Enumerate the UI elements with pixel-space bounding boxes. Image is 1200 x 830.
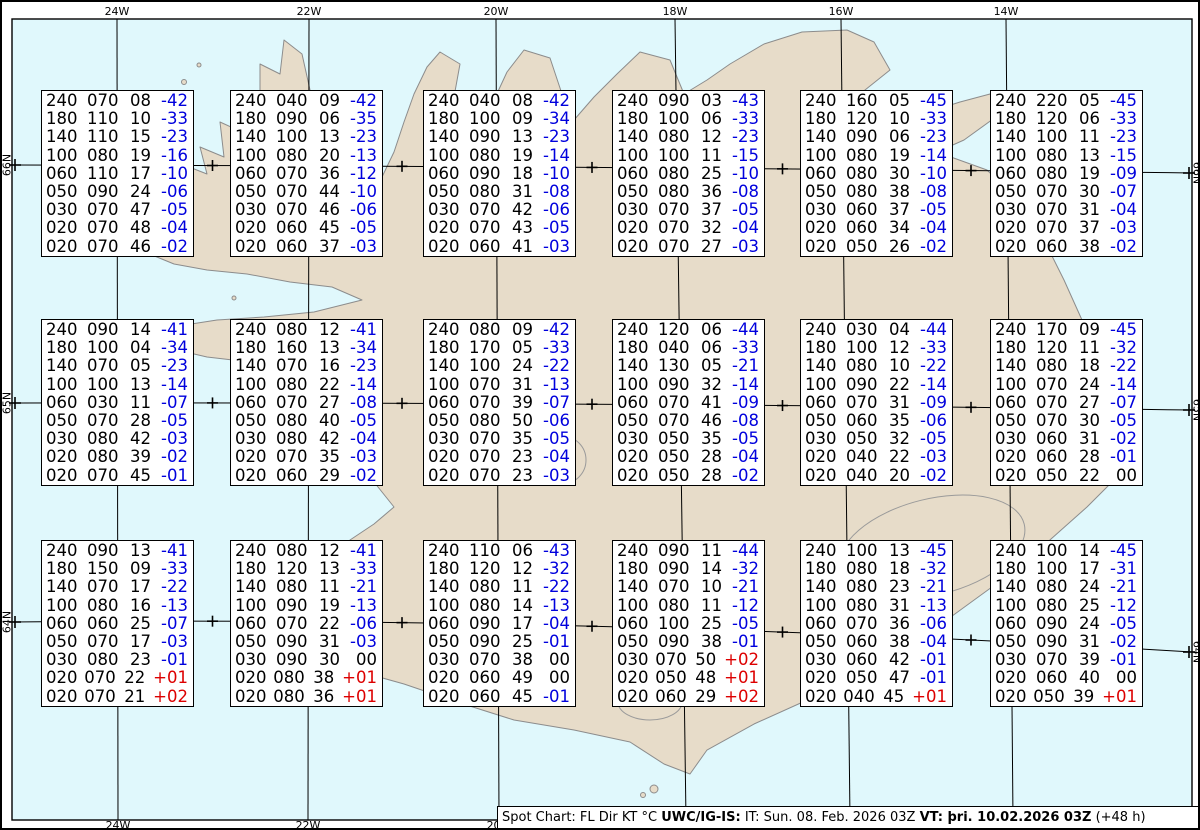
temperature-c: +02	[724, 688, 759, 706]
wind-speed-kt: 31	[1079, 201, 1110, 219]
wind-direction: 060	[87, 615, 130, 633]
wind-direction: 090	[87, 183, 130, 201]
temperature-c: -23	[1110, 128, 1137, 146]
wind-speed-kt: 46	[319, 201, 350, 219]
temperature-c: +01	[342, 669, 377, 687]
station-data-row: 03007035-05	[424, 430, 575, 448]
temperature-c: +01	[912, 688, 947, 706]
wind-speed-kt: 29	[319, 467, 350, 485]
flight-level: 060	[617, 615, 658, 633]
wind-direction: 050	[658, 467, 701, 485]
flight-level: 140	[428, 578, 469, 596]
flight-level: 060	[46, 394, 87, 412]
wind-speed-kt: 16	[319, 357, 350, 375]
wind-direction: 120	[846, 110, 889, 128]
flight-level: 050	[235, 633, 276, 651]
flight-level: 020	[46, 238, 87, 256]
wind-direction: 070	[87, 412, 130, 430]
wind-direction: 070	[87, 201, 130, 219]
wind-speed-kt: 17	[130, 165, 161, 183]
wind-speed-kt: 13	[130, 542, 161, 560]
temperature-c: -06	[161, 183, 188, 201]
wind-speed-kt: 10	[889, 357, 920, 375]
wind-speed-kt: 50	[695, 651, 724, 669]
temperature-c: -06	[543, 201, 570, 219]
temperature-c: -12	[350, 165, 377, 183]
wind-direction: 040	[846, 448, 889, 466]
wind-direction: 080	[658, 597, 701, 615]
temperature-c: -21	[920, 578, 947, 596]
wind-direction: 070	[658, 394, 701, 412]
station-data-row: 24017009-45	[991, 321, 1142, 339]
station-data-row: 0200604000	[991, 669, 1142, 687]
flight-level: 050	[995, 633, 1036, 651]
flight-level: 060	[46, 615, 87, 633]
wind-speed-kt: 06	[319, 110, 350, 128]
wind-direction: 080	[1036, 578, 1079, 596]
wind-direction: 070	[658, 412, 701, 430]
wind-speed-kt: 13	[130, 376, 161, 394]
wind-direction: 100	[469, 357, 512, 375]
temperature-c: -05	[732, 615, 759, 633]
station-data-row: 10008019-14	[801, 147, 952, 165]
station-data-row: 05007044-10	[231, 183, 382, 201]
flight-level: 180	[995, 339, 1036, 357]
wind-speed-kt: 09	[130, 560, 161, 578]
longitude-label-top: 24W	[105, 5, 130, 18]
temperature-c: -22	[1110, 357, 1137, 375]
temperature-c: -04	[920, 219, 947, 237]
station-box-r2c3: 24008009-4218017005-3314010024-221000703…	[423, 319, 576, 486]
wind-direction: 080	[469, 412, 512, 430]
wind-speed-kt: 14	[130, 321, 161, 339]
temperature-c: -02	[161, 448, 188, 466]
flight-level: 050	[428, 183, 469, 201]
flight-level: 100	[995, 147, 1036, 165]
temperature-c: -04	[732, 219, 759, 237]
station-box-r3c5: 24010013-4518008018-3214008023-211000803…	[800, 540, 953, 707]
temperature-c: -01	[920, 651, 947, 669]
station-data-row: 14008012-23	[613, 128, 764, 146]
temperature-c: -42	[161, 92, 188, 110]
flight-level: 030	[805, 651, 846, 669]
flight-level: 100	[428, 376, 469, 394]
wind-speed-kt: 49	[512, 669, 543, 687]
wind-speed-kt: 22	[889, 376, 920, 394]
wind-speed-kt: 05	[1079, 92, 1110, 110]
wind-speed-kt: 05	[889, 92, 920, 110]
temperature-c: -13	[350, 147, 377, 165]
flight-level: 060	[46, 165, 87, 183]
flight-level: 020	[235, 467, 276, 485]
temperature-c: -09	[1110, 165, 1137, 183]
station-data-row: 05007046-08	[613, 412, 764, 430]
station-data-row: 06010025-05	[613, 615, 764, 633]
flight-level: 020	[995, 688, 1033, 706]
station-data-row: 0300903000	[231, 651, 382, 669]
wind-direction: 120	[1036, 339, 1079, 357]
temperature-c: -05	[1110, 412, 1137, 430]
temperature-c: -12	[1110, 597, 1137, 615]
flight-level: 020	[805, 219, 846, 237]
station-data-row: 10008019-14	[424, 147, 575, 165]
flight-level: 100	[995, 597, 1036, 615]
station-data-row: 03007039-01	[991, 651, 1142, 669]
wind-speed-kt: 48	[695, 669, 724, 687]
temperature-c: -04	[732, 448, 759, 466]
station-data-row: 14010024-22	[424, 357, 575, 375]
flight-level: 020	[995, 238, 1036, 256]
wind-direction: 080	[273, 688, 313, 706]
flight-level: 140	[995, 357, 1036, 375]
temperature-c: -04	[543, 615, 570, 633]
station-data-row: 02004020-02	[801, 467, 952, 485]
wind-speed-kt: 35	[889, 412, 920, 430]
wind-speed-kt: 11	[1079, 128, 1110, 146]
station-data-row: 02007027-03	[613, 238, 764, 256]
wind-speed-kt: 39	[1073, 688, 1102, 706]
temperature-c: -42	[543, 92, 570, 110]
wind-speed-kt: 18	[889, 560, 920, 578]
wind-speed-kt: 38	[512, 651, 543, 669]
wind-direction: 070	[276, 394, 319, 412]
wind-speed-kt: 11	[130, 394, 161, 412]
wind-direction: 040	[846, 467, 889, 485]
wind-speed-kt: 27	[1079, 394, 1110, 412]
wind-direction: 080	[276, 578, 319, 596]
wind-direction: 080	[87, 147, 130, 165]
station-data-row: 18009006-35	[231, 110, 382, 128]
flight-level: 140	[235, 128, 276, 146]
station-data-row: 02006029-02	[231, 467, 382, 485]
wind-direction: 170	[1036, 321, 1079, 339]
station-data-row: 05006038-04	[801, 633, 952, 651]
station-box-r2c5: 24003004-4418010012-3314008010-221000902…	[800, 319, 953, 486]
station-data-row: 02004022-03	[801, 448, 952, 466]
station-data-row: 02006038-02	[991, 238, 1142, 256]
wind-speed-kt: 42	[130, 430, 161, 448]
temperature-c: -07	[1110, 394, 1137, 412]
temperature-c: -05	[920, 430, 947, 448]
wind-speed-kt: 21	[124, 688, 153, 706]
wind-speed-kt: 30	[1079, 412, 1110, 430]
station-data-row: 24004009-42	[231, 92, 382, 110]
wind-speed-kt: 24	[130, 183, 161, 201]
flight-level: 060	[428, 394, 469, 412]
wind-direction: 080	[658, 183, 701, 201]
wind-direction: 050	[1033, 688, 1073, 706]
temperature-c: -05	[161, 201, 188, 219]
temperature-c: -43	[732, 92, 759, 110]
wind-direction: 120	[276, 560, 319, 578]
wind-speed-kt: 12	[889, 339, 920, 357]
wind-direction: 070	[846, 615, 889, 633]
temperature-c: -07	[161, 394, 188, 412]
wind-speed-kt: 46	[701, 412, 732, 430]
wind-direction: 060	[276, 238, 319, 256]
station-data-row: 03006031-02	[991, 430, 1142, 448]
wind-speed-kt: 11	[319, 578, 350, 596]
wind-direction: 070	[276, 357, 319, 375]
temperature-c: -14	[350, 376, 377, 394]
station-data-row: 14008011-21	[231, 578, 382, 596]
temperature-c: +01	[342, 688, 377, 706]
station-data-row: 24008012-41	[231, 321, 382, 339]
wind-speed-kt: 22	[889, 448, 920, 466]
wind-direction: 060	[846, 633, 889, 651]
wind-direction: 090	[276, 651, 319, 669]
station-data-row: 18010012-33	[801, 339, 952, 357]
flight-level: 180	[46, 110, 87, 128]
temperature-c: -23	[543, 128, 570, 146]
wind-direction: 090	[276, 633, 319, 651]
station-data-row: 10008019-16	[42, 147, 193, 165]
station-data-row: 02005039+01	[991, 688, 1142, 706]
station-data-row: 24009011-44	[613, 542, 764, 560]
flight-level: 240	[995, 92, 1036, 110]
flight-level: 240	[235, 542, 276, 560]
status-segment: IT: Sun. 08. Feb. 2026 03Z	[741, 810, 920, 825]
wind-speed-kt: 47	[130, 201, 161, 219]
station-box-r1c1: 24007008-4218011010-3314011015-231000801…	[41, 90, 194, 257]
flight-level: 180	[235, 339, 276, 357]
wind-speed-kt: 45	[319, 219, 350, 237]
station-data-row: 0200604900	[424, 669, 575, 687]
station-data-row: 14008024-21	[991, 578, 1142, 596]
wind-speed-kt: 44	[319, 183, 350, 201]
flight-level: 020	[235, 669, 273, 687]
wind-direction: 050	[846, 238, 889, 256]
wind-direction: 040	[469, 92, 512, 110]
station-data-row: 18004006-33	[613, 339, 764, 357]
temperature-c: -01	[161, 651, 188, 669]
temperature-c: -02	[920, 238, 947, 256]
temperature-c: -34	[161, 339, 188, 357]
flight-level: 100	[46, 147, 87, 165]
flight-level: 050	[617, 412, 658, 430]
temperature-c: -01	[1110, 651, 1137, 669]
wind-direction: 090	[87, 542, 130, 560]
station-data-row: 03007037-05	[613, 201, 764, 219]
flight-level: 050	[428, 412, 469, 430]
flight-level: 060	[617, 394, 658, 412]
wind-direction: 080	[469, 147, 512, 165]
flight-level: 030	[428, 651, 469, 669]
temperature-c: +01	[724, 669, 759, 687]
station-data-row: 02007022+01	[42, 669, 193, 687]
wind-direction: 080	[1036, 357, 1079, 375]
wind-direction: 060	[469, 688, 512, 706]
wind-direction: 080	[846, 147, 889, 165]
station-box-r2c1: 24009014-4118010004-3414007005-231001001…	[41, 319, 194, 486]
wind-direction: 060	[1036, 430, 1079, 448]
status-segment: (+48 h)	[1091, 810, 1145, 825]
wind-direction: 060	[846, 201, 889, 219]
wind-direction: 100	[846, 542, 889, 560]
temperature-c: -13	[920, 597, 947, 615]
temperature-c: -03	[732, 238, 759, 256]
temperature-c: -06	[350, 201, 377, 219]
wind-direction: 070	[1036, 219, 1079, 237]
wind-speed-kt: 23	[512, 467, 543, 485]
flight-level: 240	[617, 542, 658, 560]
station-data-row: 10010013-14	[42, 376, 193, 394]
wind-direction: 070	[276, 201, 319, 219]
station-data-row: 14007010-21	[613, 578, 764, 596]
wind-speed-kt: 47	[889, 669, 920, 687]
station-box-r3c6: 24010014-4518010017-3114008024-211000802…	[990, 540, 1143, 707]
wind-speed-kt: 31	[512, 376, 543, 394]
temperature-c: +01	[153, 669, 188, 687]
wind-speed-kt: 36	[701, 183, 732, 201]
wind-direction: 050	[658, 430, 701, 448]
station-data-row: 10009022-14	[801, 376, 952, 394]
station-data-row: 05007017-03	[42, 633, 193, 651]
wind-direction: 070	[84, 669, 124, 687]
station-data-row: 03007031-04	[991, 201, 1142, 219]
station-data-row: 02007035-03	[231, 448, 382, 466]
station-data-row: 24022005-45	[991, 92, 1142, 110]
temperature-c: -06	[543, 412, 570, 430]
temperature-c: -22	[161, 578, 188, 596]
station-data-row: 03007046-06	[231, 201, 382, 219]
wind-direction: 070	[658, 201, 701, 219]
station-box-r1c2: 24004009-4218009006-3514010013-231000802…	[230, 90, 383, 257]
wind-direction: 080	[846, 183, 889, 201]
flight-level: 060	[428, 615, 469, 633]
flight-level: 050	[46, 633, 87, 651]
station-data-row: 14011015-23	[42, 128, 193, 146]
station-data-row: 05009025-01	[424, 633, 575, 651]
wind-direction: 070	[1036, 412, 1079, 430]
wind-speed-kt: 30	[889, 165, 920, 183]
station-data-row: 03005035-05	[613, 430, 764, 448]
flight-level: 020	[617, 669, 655, 687]
wind-speed-kt: 24	[512, 357, 543, 375]
station-data-row: 06009017-04	[424, 615, 575, 633]
station-data-row: 06007036-06	[801, 615, 952, 633]
station-data-row: 02007037-03	[991, 219, 1142, 237]
flight-level: 140	[46, 357, 87, 375]
wind-speed-kt: 35	[512, 430, 543, 448]
temperature-c: -33	[350, 560, 377, 578]
station-data-row: 05009038-01	[613, 633, 764, 651]
station-data-row: 10008011-12	[613, 597, 764, 615]
wind-speed-kt: 17	[130, 578, 161, 596]
wind-direction: 100	[1036, 128, 1079, 146]
wind-direction: 130	[658, 357, 701, 375]
flight-level: 020	[428, 238, 469, 256]
wind-speed-kt: 17	[1079, 560, 1110, 578]
station-data-row: 10008020-13	[231, 147, 382, 165]
wind-speed-kt: 19	[512, 147, 543, 165]
temperature-c: -01	[920, 669, 947, 687]
temperature-c: -23	[350, 128, 377, 146]
flight-level: 060	[235, 394, 276, 412]
temperature-c: -14	[732, 376, 759, 394]
longitude-label-top: 14W	[994, 5, 1019, 18]
temperature-c: -23	[350, 357, 377, 375]
wind-direction: 080	[87, 448, 130, 466]
station-data-row: 18011010-33	[42, 110, 193, 128]
station-data-row: 18010006-33	[613, 110, 764, 128]
flight-level: 030	[235, 201, 276, 219]
flight-level: 240	[428, 321, 469, 339]
temperature-c: -41	[350, 542, 377, 560]
wind-direction: 110	[87, 110, 130, 128]
station-data-row: 02006037-03	[231, 238, 382, 256]
wind-speed-kt: 12	[319, 542, 350, 560]
flight-level: 020	[428, 219, 469, 237]
wind-speed-kt: 14	[1079, 542, 1110, 560]
station-data-row: 24010013-45	[801, 542, 952, 560]
flight-level: 240	[428, 542, 469, 560]
temperature-c: -13	[543, 376, 570, 394]
wind-speed-kt: 31	[1079, 430, 1110, 448]
flight-level: 020	[995, 669, 1036, 687]
wind-direction: 090	[469, 615, 512, 633]
wind-direction: 070	[87, 238, 130, 256]
wind-direction: 070	[87, 467, 130, 485]
temperature-c: -33	[732, 339, 759, 357]
wind-speed-kt: 04	[130, 339, 161, 357]
flight-level: 020	[805, 448, 846, 466]
station-data-row: 14007017-22	[42, 578, 193, 596]
wind-speed-kt: 13	[319, 339, 350, 357]
wind-speed-kt: 25	[701, 165, 732, 183]
temperature-c: -13	[350, 597, 377, 615]
wind-speed-kt: 05	[512, 339, 543, 357]
wind-direction: 070	[87, 92, 130, 110]
temperature-c: -01	[543, 688, 570, 706]
wind-direction: 080	[87, 430, 130, 448]
wind-direction: 070	[655, 651, 695, 669]
flight-level: 140	[46, 578, 87, 596]
flight-level: 180	[235, 110, 276, 128]
temperature-c: -08	[732, 412, 759, 430]
flight-level: 030	[428, 201, 469, 219]
wind-direction: 090	[469, 633, 512, 651]
temperature-c: -02	[1110, 633, 1137, 651]
wind-speed-kt: 30	[319, 651, 350, 669]
station-data-row: 24004008-42	[424, 92, 575, 110]
wind-direction: 070	[276, 165, 319, 183]
temperature-c: -06	[920, 412, 947, 430]
wind-direction: 120	[469, 560, 512, 578]
wind-speed-kt: 41	[512, 238, 543, 256]
flight-level: 240	[46, 542, 87, 560]
station-data-row: 14008011-22	[424, 578, 575, 596]
temperature-c: -35	[350, 110, 377, 128]
temperature-c: -13	[543, 597, 570, 615]
temperature-c: -03	[350, 633, 377, 651]
wind-direction: 070	[276, 183, 319, 201]
flight-level: 020	[46, 448, 87, 466]
temperature-c: -08	[543, 183, 570, 201]
wind-direction: 070	[276, 615, 319, 633]
station-data-row: 24003004-44	[801, 321, 952, 339]
flight-level: 180	[805, 110, 846, 128]
temperature-c: -03	[350, 448, 377, 466]
wind-direction: 070	[469, 394, 512, 412]
wind-speed-kt: 16	[130, 597, 161, 615]
flight-level: 020	[805, 669, 846, 687]
wind-speed-kt: 22	[319, 376, 350, 394]
temperature-c: -02	[161, 238, 188, 256]
wind-speed-kt: 43	[512, 219, 543, 237]
wind-direction: 080	[469, 321, 512, 339]
temperature-c: -44	[920, 321, 947, 339]
